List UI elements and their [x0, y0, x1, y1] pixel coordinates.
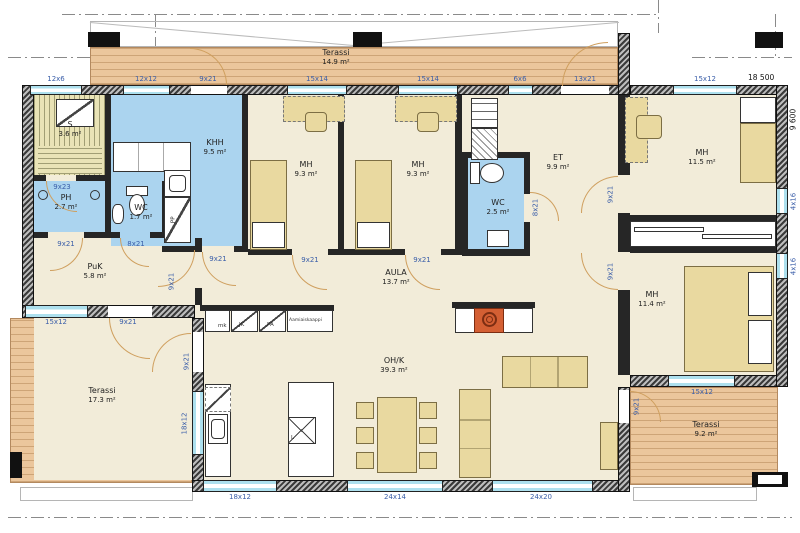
mh1-bed-pillow	[252, 222, 285, 248]
room-name: PuK	[84, 262, 107, 272]
window-24x14	[347, 480, 443, 492]
window-4x16-a	[776, 188, 788, 214]
door-label-mh4: 9x21	[608, 263, 615, 281]
door-label-puk: 9x21	[169, 273, 176, 291]
room-area: 2.5 m²	[487, 208, 510, 217]
mh3-bed-pillow	[740, 97, 776, 123]
room-name: MH	[638, 290, 665, 300]
room-label-aula: AULA13.7 m²	[382, 268, 409, 287]
loft-ladder-lower	[471, 128, 498, 160]
door-label-ohk-west-terrace: 9x21	[184, 353, 191, 371]
window-label-15x12-top: 15x12	[694, 76, 716, 83]
window-label-4x16-b: 4x16	[791, 258, 798, 276]
freezer-label: PA	[267, 323, 274, 329]
terrace-right-corner-notch	[758, 475, 782, 484]
room-label-ph: PH2.7 m²	[55, 193, 78, 212]
door-label-ph: 9x21	[57, 241, 75, 248]
room-area: 14.9 m²	[322, 58, 349, 67]
wc2-toilet-tank	[470, 162, 480, 184]
door-label-sauna: 9x23	[53, 184, 71, 191]
ph-south-wall-a	[34, 232, 48, 238]
dining-chair-5	[419, 427, 437, 444]
mh4-bed-pillow-1	[748, 272, 772, 316]
window-label-15x12-mh4: 15x12	[691, 389, 713, 396]
window-15x12-top	[673, 85, 737, 95]
room-name: S	[59, 120, 82, 130]
sofa-vertical	[459, 389, 491, 478]
window-12x12	[123, 85, 170, 95]
room-area: 11.5 m²	[688, 158, 715, 167]
kitchen-cabinet-mk-label: mk	[218, 324, 227, 330]
room-label-mh4: MH11.4 m²	[638, 290, 665, 309]
room-area: 9.3 m²	[407, 170, 430, 179]
khh-sink-basin	[169, 175, 186, 192]
window-15x14-b	[398, 85, 458, 95]
mh2-chair	[417, 112, 439, 132]
room-name: PH	[55, 193, 78, 203]
terrace-top-deck	[90, 47, 618, 85]
shower-icon-right	[90, 190, 100, 200]
room-name: MH	[688, 148, 715, 158]
room-name: Terassi	[322, 48, 349, 58]
ph-south-wall-b	[84, 232, 120, 238]
window-label-4x16-a: 4x16	[791, 193, 798, 211]
room-label-mh1: MH9.3 m²	[295, 160, 318, 179]
room-area: 9.9 m²	[547, 163, 570, 172]
room-label-wc1: WC1.7 m²	[130, 203, 153, 222]
dishwasher	[205, 387, 231, 412]
bedroom-south-wall-c	[441, 249, 530, 255]
sauna-south-wall-b	[76, 175, 111, 181]
window-4x16-b	[776, 253, 788, 279]
window-label-15x12-puk: 15x12	[45, 319, 67, 326]
door-label-mh1: 9x21	[301, 257, 319, 264]
fireplace-ring-inner	[486, 316, 493, 323]
roof-line-left	[8, 57, 92, 58]
sauna-east-wall	[105, 95, 111, 238]
window-label-24x20: 24x20	[530, 494, 552, 501]
door-gap-front-entrance	[561, 86, 609, 94]
room-name: WC	[130, 203, 153, 213]
hall-bedroom-wall-b	[618, 213, 630, 252]
entry-wing-wall	[618, 33, 630, 95]
door-gap-ohk-east-terrace	[619, 390, 629, 423]
room-area: 39.3 m²	[380, 366, 407, 375]
sofa-horizontal	[502, 356, 588, 388]
door-label-wc1: 8x21	[127, 241, 145, 248]
wc2-west-wall	[462, 158, 468, 256]
freezer	[259, 310, 286, 332]
dining-table	[377, 397, 417, 473]
room-name: Terassi	[88, 386, 115, 396]
window-24x20	[492, 480, 593, 492]
window-15x12-mh4	[668, 375, 735, 387]
dining-chair-6	[419, 452, 437, 469]
dimension-overall-width: 18 500	[748, 73, 774, 82]
wc1-sink	[112, 204, 124, 224]
dining-chair-2	[356, 427, 374, 444]
sauna-bench	[38, 146, 102, 174]
window-6x6	[508, 85, 533, 95]
sliding-door-leaf-1	[634, 227, 704, 232]
mh1-chair	[305, 112, 327, 132]
room-name: AULA	[382, 268, 409, 278]
room-name: MH	[295, 160, 318, 170]
room-area: 13.7 m²	[382, 278, 409, 287]
khh-east-wall	[242, 95, 248, 252]
washing-machine-label: PP	[172, 216, 178, 223]
dimension-overall-height: 9 600	[789, 102, 798, 138]
fridge	[231, 310, 258, 332]
roof-corner-block	[755, 32, 783, 48]
dining-chair-4	[419, 402, 437, 419]
door-label-khh-terrace: 9x21	[199, 76, 217, 83]
window-12x6	[30, 85, 82, 95]
room-label-mh2: MH9.3 m²	[407, 160, 430, 179]
room-label-sauna: S3.6 m²	[59, 120, 82, 139]
window-label-6x6: 6x6	[513, 76, 526, 83]
wc2-east-wall-a	[524, 158, 530, 194]
room-label-terrace-right: Terassi9.2 m²	[692, 420, 719, 439]
room-name: WC	[487, 198, 510, 208]
door-gap-puk-terrace	[108, 306, 152, 317]
room-area: 17.3 m²	[88, 396, 115, 405]
room-label-puk: PuK5.8 m²	[84, 262, 107, 281]
floor-plan: PP mk JK PA Aamiaiskaappi L	[0, 0, 800, 533]
room-area: 11.4 m²	[638, 300, 665, 309]
room-name: Terassi	[692, 420, 719, 430]
wc2-toilet-bowl	[480, 163, 504, 183]
door-label-wc2: 8x21	[533, 199, 540, 217]
roof-line-right	[692, 57, 792, 58]
window-label-15x14-a: 15x14	[306, 76, 328, 83]
puk-east-wall-b	[195, 288, 202, 305]
sauna-south-wall-a	[34, 175, 46, 181]
room-area: 1.7 m²	[130, 213, 153, 222]
mh2-bed-pillow	[357, 222, 390, 248]
room-area: 9.2 m²	[692, 430, 719, 439]
room-label-terrace-left: Terassi17.3 m²	[88, 386, 115, 405]
hall-bedroom-wall-c	[618, 290, 630, 375]
room-name: ET	[547, 153, 570, 163]
dining-chair-3	[356, 452, 374, 469]
mh3-bed	[740, 123, 776, 183]
room-name: OH/K	[380, 356, 407, 366]
mh4-bed-pillow-2	[748, 320, 772, 364]
window-18x12-bottom	[203, 480, 277, 492]
fridge-label: JK	[239, 323, 244, 329]
sliding-door-leaf-2	[702, 234, 772, 239]
room-name: KHH	[204, 138, 227, 148]
breakfast-cabinet-label: Aamiaiskaappi	[289, 319, 322, 324]
exterior-wall-left	[22, 85, 34, 318]
washing-machine	[164, 197, 191, 243]
window-label-24x14: 24x14	[384, 494, 406, 501]
khh-cabinets	[113, 142, 191, 172]
door-label-puk-terrace: 9x21	[119, 319, 137, 326]
window-label-12x12: 12x12	[135, 76, 157, 83]
door-label-mh3: 9x21	[608, 186, 615, 204]
site-line-bottom	[8, 517, 792, 518]
terrace-left-steps	[20, 487, 193, 501]
shower-icon-left	[38, 190, 48, 200]
window-18x12-kitchen	[192, 391, 204, 455]
door-label-ohk-east-terrace: 9x21	[634, 398, 641, 416]
exterior-wall-right	[776, 85, 788, 387]
window-15x12-puk	[25, 305, 88, 318]
dining-chair-1	[356, 402, 374, 419]
room-label-wc2: WC2.5 m²	[487, 198, 510, 217]
room-name: MH	[407, 160, 430, 170]
room-area: 2.7 m²	[55, 203, 78, 212]
loft-ladder-upper	[471, 98, 498, 128]
door-gap-ohk-west-terrace	[193, 332, 203, 372]
window-15x14-a	[287, 85, 347, 95]
wc2-sink	[487, 230, 509, 247]
window-label-12x6: 12x6	[47, 76, 65, 83]
door-label-mh2: 9x21	[413, 257, 431, 264]
room-area: 9.5 m²	[204, 148, 227, 157]
porch-post-right	[353, 32, 382, 47]
room-label-khh: KHH9.5 m²	[204, 138, 227, 157]
room-label-mh3: MH11.5 m²	[688, 148, 715, 167]
room-label-et: ET9.9 m²	[547, 153, 570, 172]
roof-line-entry-vertical	[658, 0, 659, 33]
terrace-right-steps	[633, 487, 757, 501]
window-label-15x14-b: 15x14	[417, 76, 439, 83]
window-label-18x12-kitchen: 18x12	[182, 413, 189, 435]
wardrobe-south-wall	[630, 247, 776, 253]
porch-post-left	[88, 32, 120, 47]
stove-label: L	[291, 436, 294, 442]
puk-east-wall-a	[195, 238, 202, 250]
room-area: 5.8 m²	[84, 272, 107, 281]
room-area: 9.3 m²	[295, 170, 318, 179]
room-area: 3.6 m²	[59, 130, 82, 139]
mh3-chair	[636, 115, 662, 139]
terrace-left-corner-post	[10, 452, 22, 478]
tv-bench	[600, 422, 618, 470]
door-gap-khh-terrace	[191, 86, 227, 94]
ph-south-wall-c	[150, 232, 162, 238]
window-label-18x12-bottom: 18x12	[229, 494, 251, 501]
kitchen-sink-basin	[211, 419, 225, 439]
door-label-front-entrance: 13x21	[574, 76, 596, 83]
room-label-ohk: OH/K39.3 m²	[380, 356, 407, 375]
door-label-khh: 9x21	[209, 256, 227, 263]
room-label-terrace-top: Terassi14.9 m²	[322, 48, 349, 67]
roof-centerline-top	[62, 14, 658, 15]
